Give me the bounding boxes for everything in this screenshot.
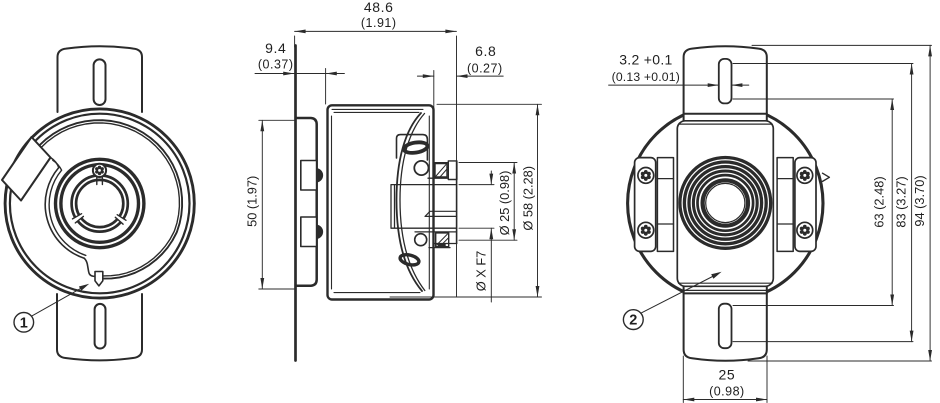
- svg-text:94 (3.70): 94 (3.70): [912, 175, 927, 226]
- svg-text:Ø 25 (0.98): Ø 25 (0.98): [497, 171, 512, 236]
- svg-text:(0.13 +0.01): (0.13 +0.01): [612, 70, 680, 84]
- svg-text:1: 1: [20, 315, 28, 331]
- svg-text:(0.37): (0.37): [258, 57, 294, 71]
- svg-text:2: 2: [629, 313, 637, 329]
- svg-text:50 (1.97): 50 (1.97): [245, 176, 260, 227]
- svg-text:(0.98): (0.98): [709, 385, 745, 399]
- svg-text:9.4: 9.4: [265, 40, 286, 56]
- svg-text:Ø X F7: Ø X F7: [474, 251, 489, 292]
- svg-text:(0.27): (0.27): [467, 61, 503, 75]
- svg-text:Ø 58 (2.28): Ø 58 (2.28): [521, 166, 536, 231]
- svg-text:6.8: 6.8: [475, 43, 496, 59]
- svg-text:63 (2.48): 63 (2.48): [871, 176, 886, 227]
- svg-text:(1.91): (1.91): [361, 16, 397, 30]
- svg-text:83 (3.27): 83 (3.27): [894, 176, 909, 227]
- svg-text:3.2 +0.1: 3.2 +0.1: [619, 52, 672, 68]
- svg-text:25: 25: [719, 367, 736, 383]
- svg-text:48.6: 48.6: [364, 0, 394, 15]
